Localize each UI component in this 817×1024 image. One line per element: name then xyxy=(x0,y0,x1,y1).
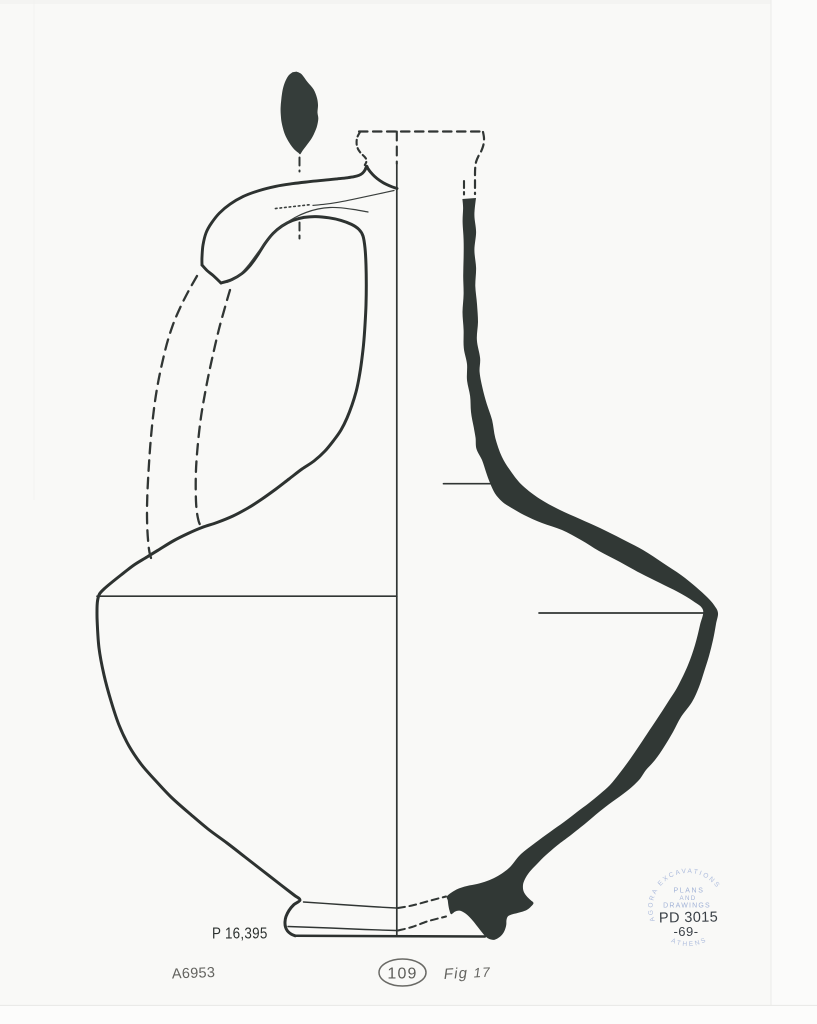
svg-text:AND: AND xyxy=(680,895,697,902)
svg-text:109: 109 xyxy=(387,966,417,983)
svg-text:-69-: -69- xyxy=(673,924,698,939)
svg-text:DRAWINGS: DRAWINGS xyxy=(663,903,711,910)
svg-text:A6953: A6953 xyxy=(172,965,216,983)
svg-text:PLANS: PLANS xyxy=(674,888,705,895)
svg-text:P 16,395: P 16,395 xyxy=(212,926,268,943)
